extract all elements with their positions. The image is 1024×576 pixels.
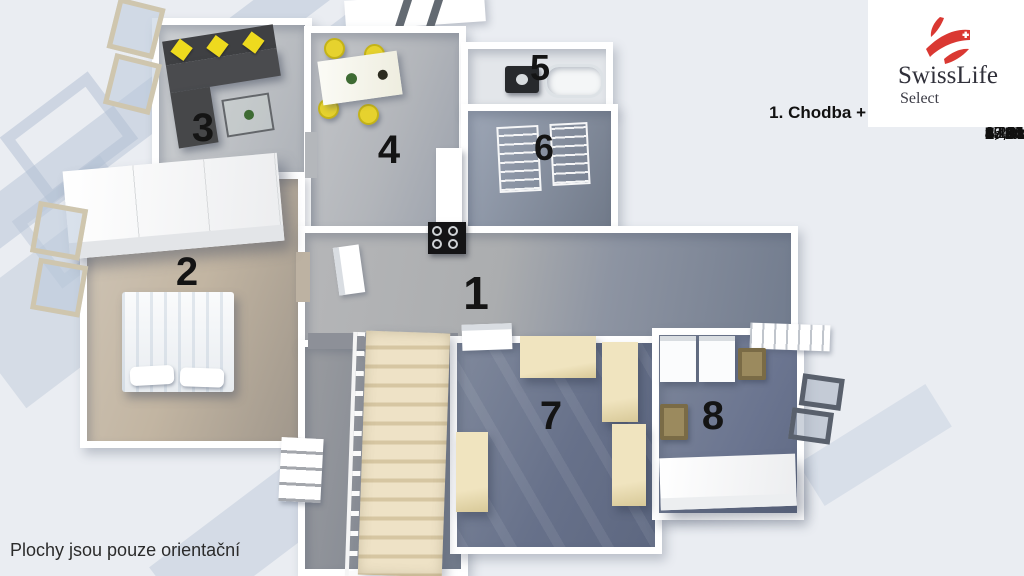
coffee-table <box>221 92 274 137</box>
room-number-living: 3 <box>182 108 224 148</box>
room-number-storage: 7 <box>530 396 572 436</box>
window-pane <box>106 0 165 59</box>
laundry-open-window <box>787 372 852 451</box>
staircase <box>358 331 450 576</box>
room-number-hall: 1 <box>452 270 500 316</box>
window-pane <box>799 373 845 411</box>
floorplan-render: 1 2 3 4 5 6 7 8 1. Chodba + 19,05 m² 2. … <box>0 0 1024 576</box>
plant <box>345 72 357 84</box>
door-threshold <box>462 323 513 351</box>
bowl <box>377 69 388 80</box>
burner <box>432 239 442 249</box>
room-number-kitchen: 4 <box>368 130 410 170</box>
swisslife-logo: SwissLife Select <box>868 0 1024 127</box>
storage-cabinet <box>602 342 638 422</box>
dining-chair <box>358 104 379 125</box>
disclaimer-text: Plochy jsou pouze orientační <box>10 540 240 561</box>
burner <box>448 239 458 249</box>
window-pane <box>30 201 88 261</box>
room-number-bedroom: 2 <box>166 252 208 292</box>
slatted-panel <box>278 437 323 503</box>
burner <box>448 226 458 236</box>
legend-item-1-label: 1. Chodba + <box>769 103 866 123</box>
window-pane <box>103 53 162 115</box>
room-number-bathroom: 5 <box>520 50 560 86</box>
plant <box>243 109 254 120</box>
legend-item-8-area: 9,44 m² <box>985 124 1024 144</box>
storage-cabinet <box>456 432 488 512</box>
bed-pillow <box>130 365 175 386</box>
bed-pillow <box>180 367 225 388</box>
kitchen-counter <box>436 148 462 222</box>
dining-chair <box>324 38 345 59</box>
window-pane <box>30 258 88 318</box>
room-number-laundry: 8 <box>692 396 734 436</box>
laundry-basket <box>660 404 688 440</box>
washing-machine <box>699 336 735 382</box>
laundry-counter <box>659 454 797 511</box>
logo-brand-text: SwissLife <box>898 62 998 90</box>
room-number-drying: 6 <box>524 130 564 166</box>
laundry-basket <box>738 348 766 380</box>
washing-machine <box>660 336 696 382</box>
doorway-living-kitchen <box>305 132 317 178</box>
swisslife-flag-icon <box>924 16 972 66</box>
bed <box>122 292 234 392</box>
window-pane <box>788 407 834 445</box>
burner <box>432 226 442 236</box>
storage-cabinet <box>520 336 596 378</box>
storage-cabinet <box>612 424 646 506</box>
doorway-bedroom-hall <box>296 252 310 302</box>
logo-sub-text: Select <box>900 90 939 108</box>
cooktop <box>428 222 466 254</box>
